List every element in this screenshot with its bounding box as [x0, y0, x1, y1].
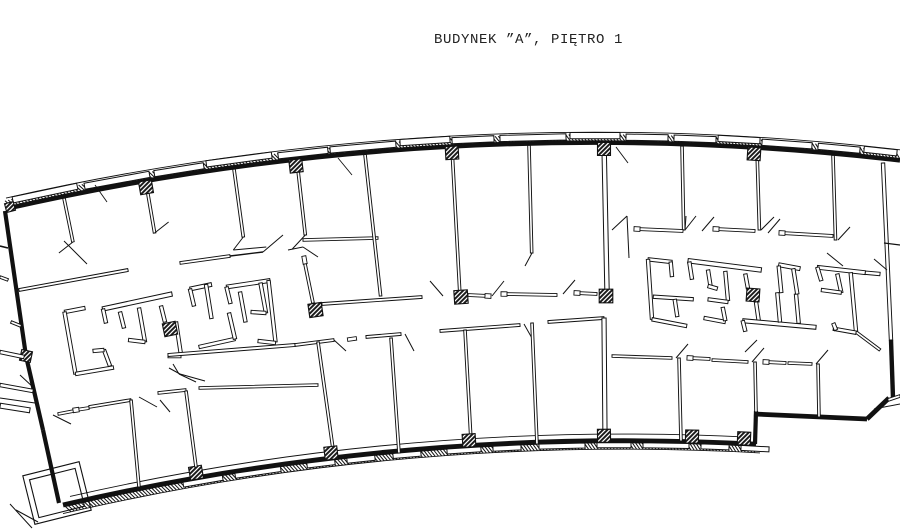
svg-text:BUDYNEK ”A”, PIĘTRO 1: BUDYNEK ”A”, PIĘTRO 1	[434, 32, 623, 48]
